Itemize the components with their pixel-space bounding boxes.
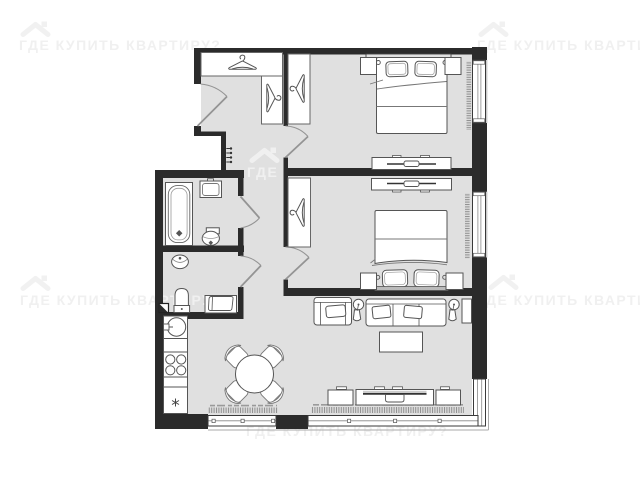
svg-text:ГДЕ КУПИТЬ КВАРТИРУ?: ГДЕ КУПИТЬ КВАРТИРУ? <box>477 292 640 308</box>
svg-text:ГДЕ КУПИТЬ КВАРТИРУ?: ГДЕ КУПИТЬ КВАРТИРУ? <box>19 37 221 53</box>
svg-text:ГДЕ КУПИТЬ КВАРТИРУ?: ГДЕ КУПИТЬ КВАРТИРУ? <box>477 37 640 53</box>
svg-text:ГДЕ КУПИТЬ КВАРТИРУ?: ГДЕ КУПИТЬ КВАРТИРУ? <box>20 292 222 308</box>
